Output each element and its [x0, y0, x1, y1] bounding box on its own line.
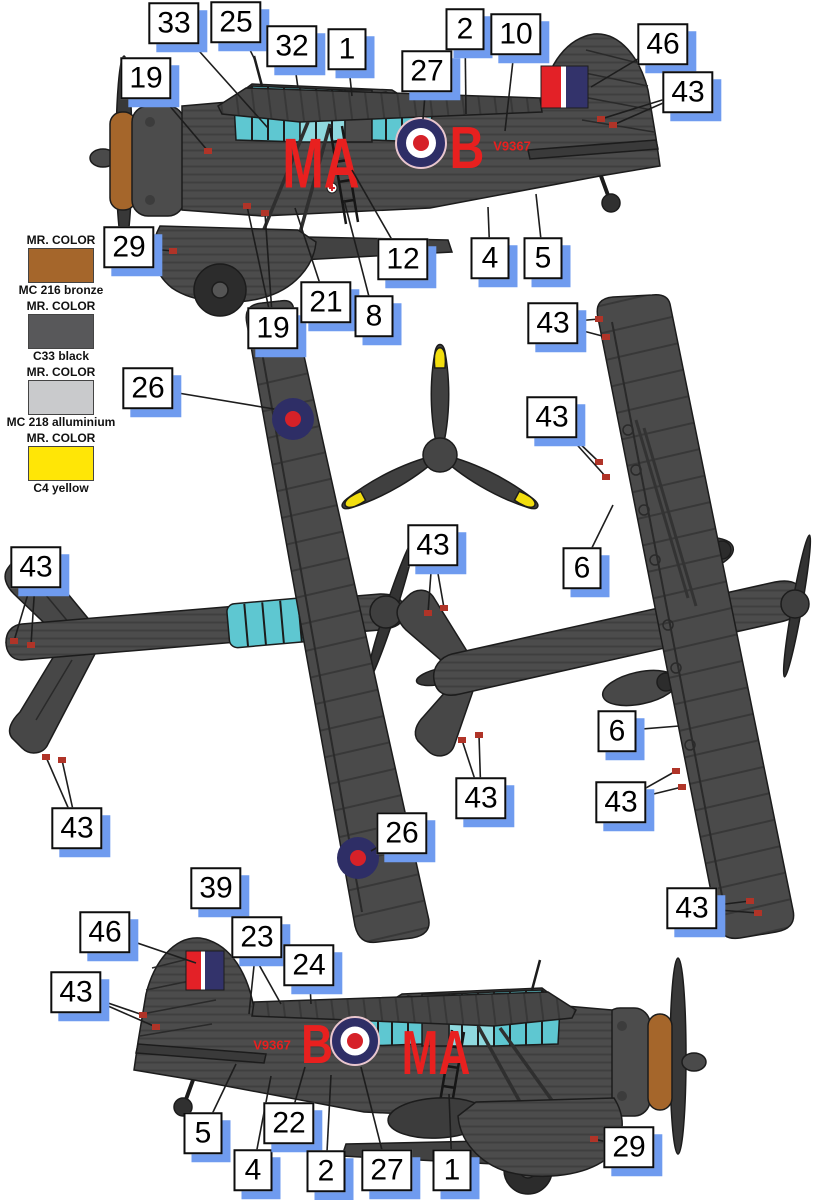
fin-flash: [541, 66, 588, 108]
squadron-code: MA: [282, 124, 359, 205]
bottom-view-aircraft: [397, 295, 814, 939]
legend-entry-alluminium: MR. COLOR MC 218 alluminium: [2, 366, 120, 429]
legend-entry-bronze: MR. COLOR MC 216 bronze: [2, 234, 120, 297]
fin-flash: [186, 951, 224, 990]
callout-29: 29: [603, 1126, 654, 1168]
tailwheel: [602, 194, 620, 212]
raf-roundel: [272, 398, 314, 440]
spinner: [682, 1053, 706, 1071]
stabilizer-lower: [10, 646, 96, 753]
engine-cowl-bronze: [648, 1014, 672, 1110]
squadron-code: MA: [402, 1018, 471, 1090]
callout-12: 12: [377, 238, 428, 280]
callout-43: 43: [662, 71, 713, 113]
callout-43: 43: [526, 396, 577, 438]
callout-46: 46: [637, 23, 688, 65]
callout-43: 43: [595, 781, 646, 823]
callout-5: 5: [184, 1112, 223, 1154]
callout-4: 4: [234, 1149, 273, 1191]
color-swatch-alluminium: [28, 380, 94, 415]
callout-19: 19: [247, 307, 298, 349]
decal-instruction-sheet: MR. COLOR MC 216 bronze MR. COLOR C33 bl…: [0, 0, 814, 1200]
paint-name: MC 218 alluminium: [2, 416, 120, 429]
callout-33: 33: [148, 2, 199, 44]
callout-1: 1: [433, 1149, 472, 1191]
callout-8: 8: [355, 295, 394, 337]
color-swatch-black: [28, 314, 94, 349]
wheel-spat: [458, 1098, 622, 1176]
paint-brand: MR. COLOR: [2, 234, 120, 247]
propeller-part: [338, 345, 541, 515]
callout-25: 25: [210, 1, 261, 43]
callout-32: 32: [266, 25, 317, 67]
aerial-mast: [532, 960, 540, 990]
wheel-hub: [212, 282, 228, 298]
callout-10: 10: [490, 13, 541, 55]
aircraft-letter: B: [450, 112, 485, 182]
callout-43: 43: [10, 546, 61, 588]
raf-roundel: [337, 837, 379, 879]
callout-2: 2: [307, 1150, 346, 1192]
raf-roundel: [331, 1017, 379, 1065]
callout-46: 46: [79, 911, 130, 953]
paint-legend: MR. COLOR MC 216 bronze MR. COLOR C33 bl…: [2, 234, 120, 498]
engine-section: [132, 106, 184, 216]
callout-43: 43: [527, 302, 578, 344]
color-swatch-bronze: [28, 248, 94, 283]
raf-roundel: [396, 118, 446, 168]
engine-cowl: [781, 590, 809, 618]
callout-1: 1: [328, 28, 367, 70]
callout-29: 29: [103, 226, 154, 268]
serial-number: V9367: [493, 139, 531, 154]
paint-name: MC 216 bronze: [2, 284, 120, 297]
callout-43: 43: [666, 887, 717, 929]
callout-39: 39: [190, 867, 241, 909]
callout-26: 26: [376, 812, 427, 854]
serial-number: V9367: [253, 1038, 291, 1053]
side-profile-top: [90, 34, 660, 316]
paint-name: C33 black: [2, 350, 120, 363]
color-swatch-yellow: [28, 446, 94, 481]
callout-2: 2: [446, 8, 485, 50]
paint-brand: MR. COLOR: [2, 366, 120, 379]
callout-27: 27: [361, 1149, 412, 1191]
callout-26: 26: [122, 367, 173, 409]
paint-name: C4 yellow: [2, 482, 120, 495]
callout-23: 23: [231, 916, 282, 958]
callout-6: 6: [598, 710, 637, 752]
callout-43: 43: [51, 807, 102, 849]
aircraft-letter: B: [301, 1014, 333, 1076]
callout-43: 43: [50, 971, 101, 1013]
callout-4: 4: [471, 237, 510, 279]
callout-21: 21: [300, 281, 351, 323]
paint-brand: MR. COLOR: [2, 300, 120, 313]
legend-entry-yellow: MR. COLOR C4 yellow: [2, 432, 120, 495]
prop-tip-yellow: [434, 348, 445, 368]
callout-6: 6: [563, 547, 602, 589]
callout-27: 27: [401, 50, 452, 92]
callout-24: 24: [283, 944, 334, 986]
callout-5: 5: [524, 237, 563, 279]
paint-brand: MR. COLOR: [2, 432, 120, 445]
legend-entry-black: MR. COLOR C33 black: [2, 300, 120, 363]
callout-43: 43: [407, 524, 458, 566]
aerial-mast: [254, 56, 262, 86]
callout-22: 22: [263, 1102, 314, 1144]
callout-19: 19: [120, 57, 171, 99]
propeller-hub: [423, 438, 457, 472]
callout-43: 43: [455, 777, 506, 819]
